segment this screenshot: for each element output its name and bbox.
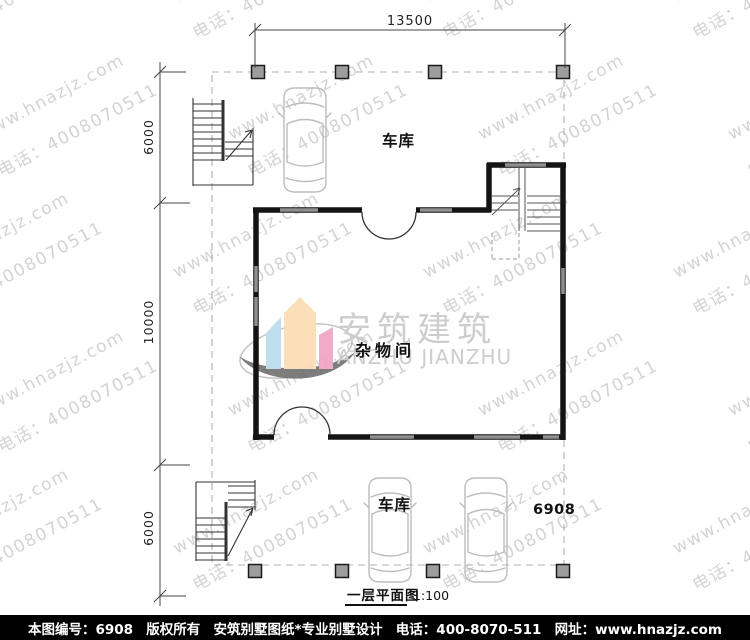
footer-phone: 电话：400-8070-511: [396, 618, 542, 638]
footer-website: 网址：www.hnazjz.com: [555, 618, 722, 638]
garage-bottom-label: 车库: [378, 495, 411, 514]
top-door-right-leaf: [389, 212, 416, 239]
bottom-door-right-leaf: [302, 407, 330, 435]
floor-plan-page: www.hnazjz.com电话：4008070511www.hnazjz.co…: [0, 0, 750, 640]
car-top-garage: [279, 88, 331, 192]
sheet-number-label: 6908: [533, 502, 575, 518]
logo-bar-pink: [319, 327, 333, 369]
plan-title-text: 一层平面图: [347, 588, 420, 604]
footer-sheet-no: 本图编号：6908: [28, 618, 133, 638]
garage-top-label: 车库: [382, 131, 415, 150]
stairs-bottom-left: [196, 480, 255, 561]
plan-title-scale: 1:100: [413, 588, 449, 603]
floor-plan-drawing: 13500 6000 10000 6000 安筑建筑 ANZHU JIANZHU: [0, 0, 750, 640]
bottom-door-left-leaf: [274, 407, 302, 435]
dimension-top-value: 13500: [387, 14, 433, 29]
storage-room-label: 杂物间: [355, 341, 415, 360]
logo-bar-blue: [266, 317, 281, 369]
footer-studio: 安筑别墅图纸*专业别墅设计: [214, 618, 383, 638]
footer-bar: 本图编号：6908 版权所有 安筑别墅图纸*专业别墅设计 电话：400-8070…: [0, 615, 750, 640]
top-door-left-leaf: [362, 212, 389, 239]
footer-copyright: 版权所有: [146, 618, 200, 638]
car-bottom-garage-left: [364, 478, 416, 582]
dimension-left-bottom: 6000: [141, 510, 156, 546]
dimension-top: 13500: [249, 14, 571, 68]
plan-title: 一层平面图 1:100: [345, 588, 449, 605]
car-bottom-garage-right: [460, 478, 512, 582]
dimension-left-middle: 10000: [141, 300, 156, 345]
stairwell-stairs: [492, 168, 560, 259]
logo-house-peach: [284, 297, 316, 369]
dimension-left: 6000 10000 6000: [141, 62, 190, 606]
dimension-left-top: 6000: [141, 119, 156, 155]
stairs-top-left: [193, 98, 253, 186]
